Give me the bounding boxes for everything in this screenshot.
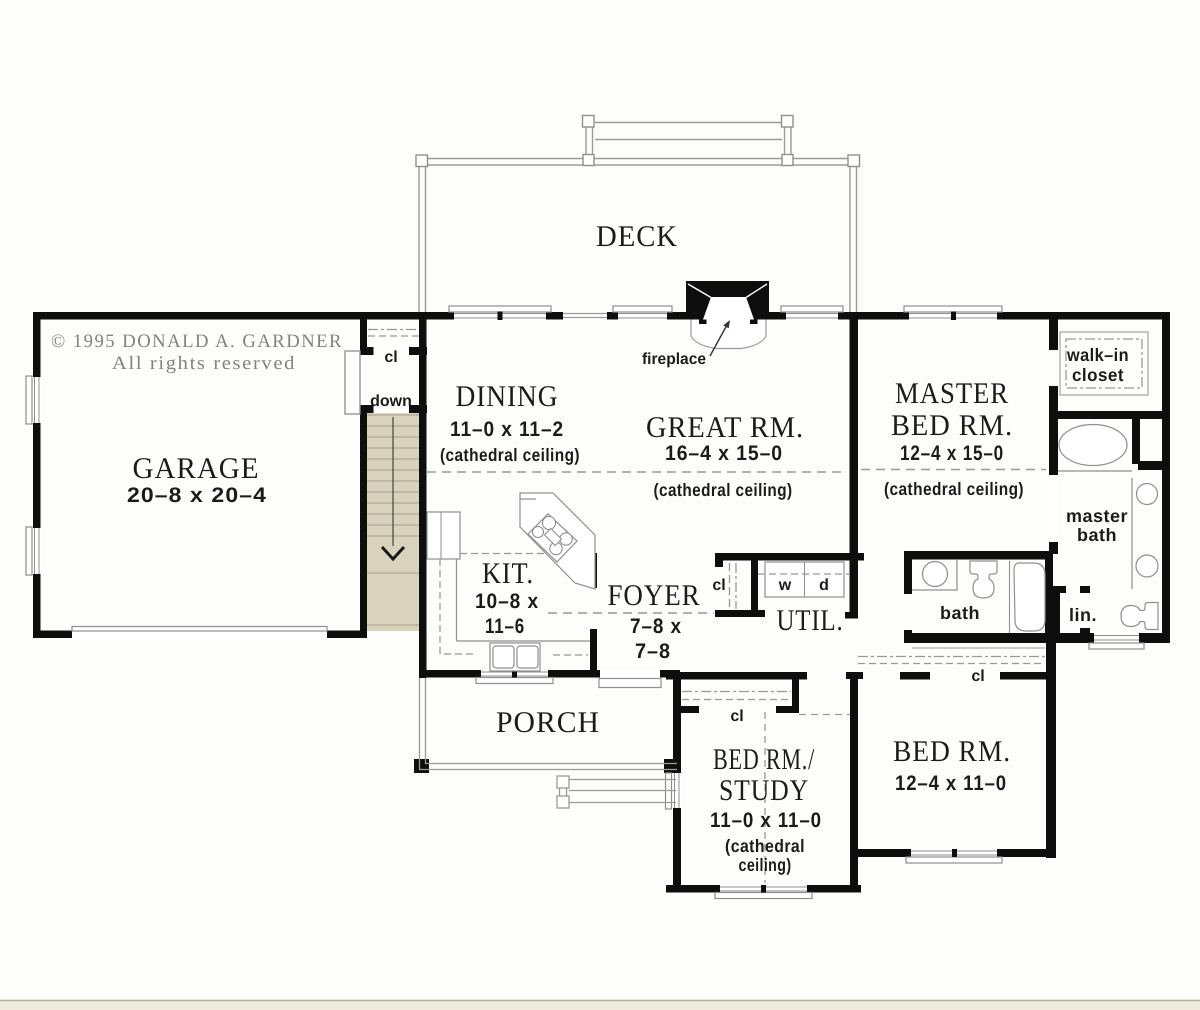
svg-text:KIT.: KIT. [482, 557, 534, 590]
svg-text:BED RM.: BED RM. [891, 409, 1013, 442]
svg-text:GARAGE: GARAGE [133, 452, 260, 485]
svg-text:d: d [819, 577, 829, 594]
svg-text:DINING: DINING [456, 380, 559, 413]
svg-text:10–8 x: 10–8 x [475, 590, 539, 613]
svg-text:UTIL.: UTIL. [777, 604, 844, 637]
svg-text:cl: cl [712, 577, 725, 594]
svg-text:BED RM./: BED RM./ [713, 743, 815, 776]
svg-text:7–8 x: 7–8 x [630, 615, 682, 638]
svg-text:master: master [1066, 506, 1128, 526]
svg-text:(cathedral: (cathedral [725, 836, 805, 856]
svg-text:fireplace: fireplace [642, 351, 706, 368]
svg-text:GREAT RM.: GREAT RM. [646, 411, 804, 444]
svg-text:(cathedral ceiling): (cathedral ceiling) [884, 479, 1024, 499]
svg-text:cl: cl [730, 708, 743, 725]
svg-text:MASTER: MASTER [895, 377, 1009, 410]
svg-text:closet: closet [1072, 365, 1124, 385]
svg-text:(cathedral ceiling): (cathedral ceiling) [654, 480, 793, 500]
svg-text:bath: bath [1077, 525, 1117, 545]
svg-text:11–6: 11–6 [485, 615, 525, 638]
svg-text:12–4 x 11–0: 12–4 x 11–0 [895, 772, 1007, 795]
svg-text:(cathedral ceiling): (cathedral ceiling) [440, 445, 580, 465]
svg-text:© 1995 DONALD A. GARDNER: © 1995 DONALD A. GARDNER [51, 331, 343, 352]
svg-text:bath: bath [940, 603, 980, 623]
svg-text:STUDY: STUDY [719, 774, 809, 807]
svg-text:FOYER: FOYER [608, 579, 701, 612]
svg-text:cl: cl [384, 349, 397, 366]
svg-text:lin.: lin. [1069, 605, 1097, 625]
svg-text:11–0 x 11–2: 11–0 x 11–2 [450, 418, 564, 441]
svg-text:cl: cl [971, 668, 984, 685]
svg-text:w: w [778, 577, 792, 594]
svg-text:7–8: 7–8 [635, 640, 671, 663]
svg-text:20–8 x 20–4: 20–8 x 20–4 [127, 484, 267, 507]
svg-text:BED RM.: BED RM. [893, 735, 1011, 768]
svg-text:11–0 x 11–0: 11–0 x 11–0 [710, 809, 822, 832]
svg-text:PORCH: PORCH [496, 706, 600, 739]
svg-text:16–4 x 15–0: 16–4 x 15–0 [665, 442, 783, 465]
svg-text:down: down [370, 393, 412, 410]
svg-text:walk–in: walk–in [1066, 345, 1129, 365]
svg-text:12–4 x 15–0: 12–4 x 15–0 [900, 442, 1004, 465]
svg-text:All rights reserved: All rights reserved [112, 353, 296, 374]
svg-text:ceiling): ceiling) [739, 855, 792, 875]
svg-text:DECK: DECK [596, 220, 678, 253]
